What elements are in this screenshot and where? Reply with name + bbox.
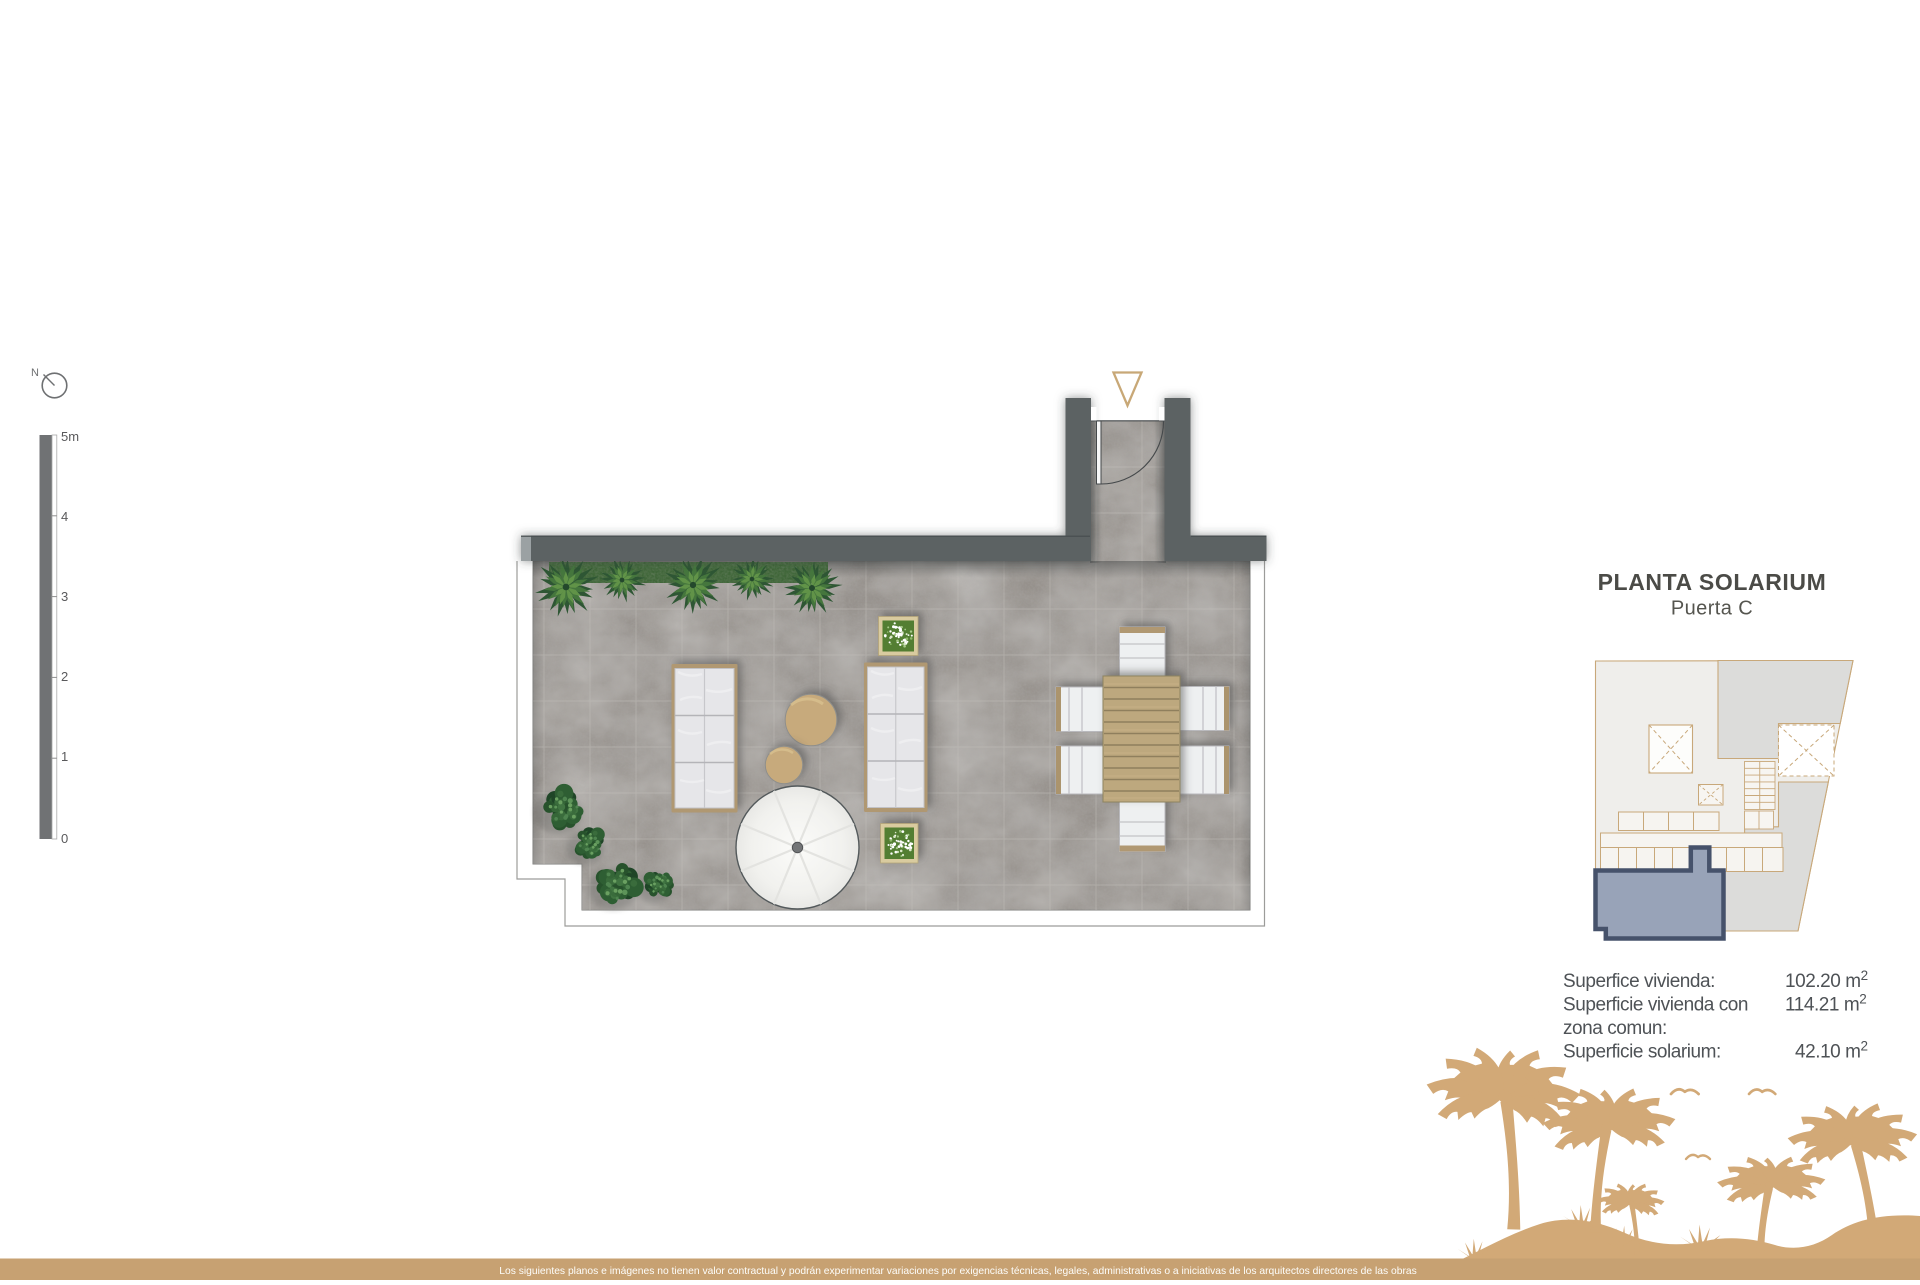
svg-text:Puerta C: Puerta C (1671, 598, 1753, 620)
svg-text:PLANTA SOLARIUM: PLANTA SOLARIUM (1598, 569, 1827, 595)
svg-text:0: 0 (61, 831, 68, 846)
svg-text:5m: 5m (61, 429, 79, 444)
svg-text:Superfice vivienda:: Superfice vivienda: (1563, 971, 1715, 992)
svg-text:3: 3 (61, 589, 68, 604)
svg-text:Los siguientes planos e imágen: Los siguientes planos e imágenes no tien… (499, 1266, 1417, 1277)
svg-text:1: 1 (61, 749, 68, 764)
svg-text:zona comun:: zona comun: (1563, 1018, 1667, 1039)
svg-text:4: 4 (61, 509, 68, 524)
svg-text:2: 2 (61, 669, 68, 684)
svg-text:Superficie vivienda con: Superficie vivienda con (1563, 995, 1748, 1016)
svg-text:114.21 m2: 114.21 m2 (1785, 992, 1866, 1016)
svg-text:N: N (31, 367, 39, 379)
svg-text:Superficie solarium:: Superficie solarium: (1563, 1042, 1721, 1063)
svg-text:102.20 m2: 102.20 m2 (1785, 968, 1868, 992)
svg-text:42.10 m2: 42.10 m2 (1795, 1039, 1868, 1063)
